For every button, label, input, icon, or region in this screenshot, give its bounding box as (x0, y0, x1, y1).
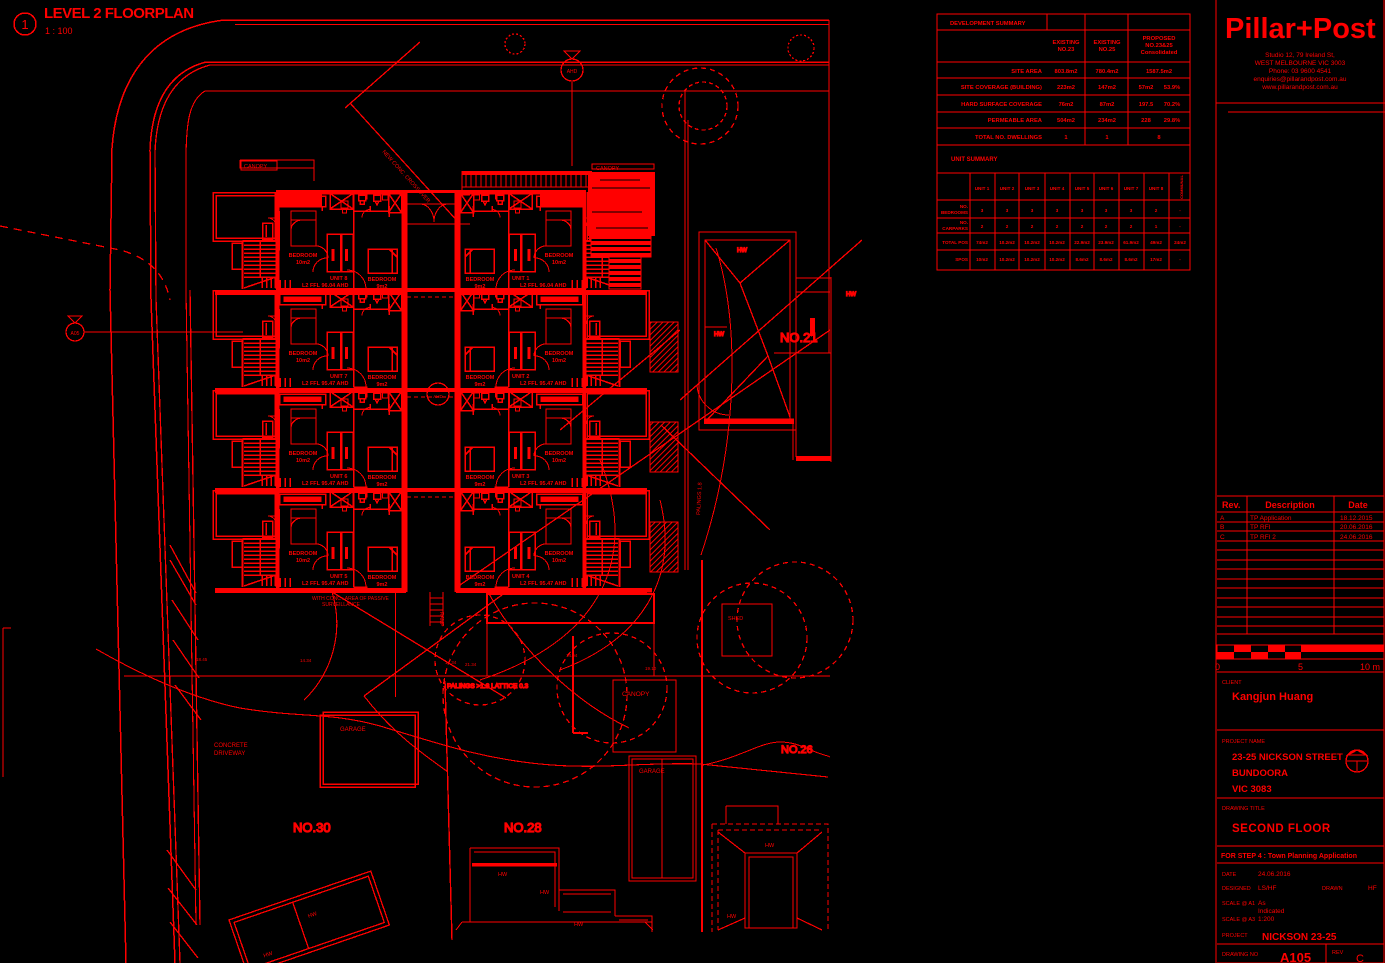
svg-text:UNIT 8: UNIT 8 (1149, 186, 1164, 191)
svg-text:Description: Description (1265, 500, 1315, 510)
svg-text:Date: Date (1348, 500, 1368, 510)
svg-text:FOR STEP 4 : Town Planning App: FOR STEP 4 : Town Planning Application (1221, 853, 1357, 860)
svg-text:PROJECT NAME: PROJECT NAME (1222, 739, 1265, 745)
svg-text:L2 FFL 95.47 AHD: L2 FFL 95.47 AHD (302, 381, 348, 387)
svg-text:UNIT 3: UNIT 3 (512, 474, 529, 480)
svg-text:10m2: 10m2 (296, 358, 310, 364)
svg-text:UNIT 5: UNIT 5 (330, 574, 347, 580)
svg-text:Rev.: Rev. (1222, 500, 1240, 510)
svg-text:87m2: 87m2 (1100, 102, 1115, 108)
svg-text:BEDROOM: BEDROOM (289, 253, 318, 259)
svg-text:Phone: 03 9600 4541: Phone: 03 9600 4541 (1269, 68, 1332, 75)
svg-text:10.2m2: 10.2m2 (1024, 257, 1040, 262)
svg-text:A105: A105 (1280, 950, 1311, 963)
svg-text:9m2: 9m2 (474, 382, 485, 388)
svg-text:780.4m2: 780.4m2 (1096, 69, 1119, 75)
svg-text:29.8%: 29.8% (1164, 118, 1180, 124)
svg-text:18.45: 18.45 (196, 657, 208, 662)
svg-text:COMMUNAL: COMMUNAL (1179, 175, 1184, 199)
svg-text:BEDROOM: BEDROOM (545, 551, 574, 557)
svg-text:L2 FFL 95.47 AHD: L2 FFL 95.47 AHD (302, 581, 348, 587)
svg-text:10m2: 10m2 (296, 260, 310, 266)
svg-text:9m2: 9m2 (474, 284, 485, 290)
svg-text:3: 3 (1081, 208, 1084, 213)
svg-text:57m2: 57m2 (1139, 85, 1154, 91)
svg-text:Studio 12, 79 Ireland St,: Studio 12, 79 Ireland St, (1265, 52, 1335, 59)
svg-text:2: 2 (1105, 224, 1108, 229)
svg-text:147m2: 147m2 (1098, 85, 1116, 91)
svg-text:24.06.2016: 24.06.2016 (1340, 534, 1373, 541)
svg-text:8.6m2: 8.6m2 (1124, 257, 1137, 262)
svg-text:PERMEABLE AREA: PERMEABLE AREA (988, 118, 1043, 124)
svg-text:10m2: 10m2 (976, 257, 988, 262)
svg-text:HW: HW (727, 914, 737, 920)
svg-text:53.9%: 53.9% (1164, 85, 1180, 91)
svg-text:5: 5 (1298, 662, 1303, 672)
svg-text:Indicated: Indicated (1258, 908, 1285, 915)
svg-text:BEDROOM: BEDROOM (289, 451, 318, 457)
svg-text:HW: HW (714, 332, 724, 338)
svg-text:NO.26: NO.26 (781, 744, 813, 756)
svg-text:1 : 100: 1 : 100 (45, 26, 73, 36)
svg-text:8.6m2: 8.6m2 (1099, 257, 1112, 262)
svg-text:9m2: 9m2 (474, 482, 485, 488)
svg-text:NO.23: NO.23 (1058, 47, 1076, 53)
svg-text:DRAWING TITLE: DRAWING TITLE (1222, 806, 1265, 812)
svg-text:NO.: NO. (960, 220, 968, 225)
svg-text:BEDROOM: BEDROOM (289, 551, 318, 557)
svg-text:SITE COVERAGE (BUILDING): SITE COVERAGE (BUILDING) (961, 85, 1042, 91)
svg-text:3: 3 (1031, 208, 1034, 213)
svg-text:DRAWN: DRAWN (1322, 886, 1343, 892)
svg-text:WEST MELBOURNE VIC 3003: WEST MELBOURNE VIC 3003 (1255, 60, 1346, 67)
svg-text:BEDROOM: BEDROOM (368, 575, 397, 581)
svg-text:24m2: 24m2 (1174, 240, 1186, 245)
svg-text:UNIT 4: UNIT 4 (512, 574, 530, 580)
svg-text:BUNDOORA: BUNDOORA (1232, 768, 1288, 779)
svg-text:21.34: 21.34 (465, 662, 477, 667)
svg-text:CONCRETE: CONCRETE (214, 743, 248, 749)
svg-text:10 m: 10 m (1360, 662, 1380, 672)
svg-text:REV: REV (1332, 950, 1344, 956)
svg-text:NO.: NO. (960, 204, 968, 209)
svg-text:NICKSON 23-25: NICKSON 23-25 (1262, 932, 1337, 943)
svg-text:A05: A05 (71, 331, 80, 337)
svg-text:1: 1 (1155, 224, 1158, 229)
svg-text:UNIT 7: UNIT 7 (1124, 186, 1139, 191)
svg-text:HW: HW (574, 922, 584, 928)
svg-text:UNIT 2: UNIT 2 (1000, 186, 1015, 191)
svg-text:BEDROOM: BEDROOM (466, 475, 495, 481)
svg-text:3: 3 (1130, 208, 1133, 213)
svg-text:9m2: 9m2 (376, 382, 387, 388)
svg-text:LS/HF: LS/HF (1258, 885, 1276, 892)
svg-text:BEDROOM: BEDROOM (368, 375, 397, 381)
svg-text:9m2: 9m2 (376, 284, 387, 290)
svg-text:3: 3 (981, 208, 984, 213)
svg-text:UNIT 2: UNIT 2 (512, 374, 529, 380)
svg-text:18.12.2015: 18.12.2015 (1340, 515, 1373, 522)
svg-text:DEVELOPMENT SUMMARY: DEVELOPMENT SUMMARY (950, 21, 1026, 27)
svg-text:10.2m2: 10.2m2 (999, 257, 1015, 262)
svg-text:TP RFI: TP RFI (1250, 524, 1271, 531)
svg-text:10m2: 10m2 (296, 558, 310, 564)
svg-text:10.2m2: 10.2m2 (1049, 257, 1065, 262)
svg-text:22.9m2: 22.9m2 (1074, 240, 1090, 245)
svg-text:BEDROOMS: BEDROOMS (941, 210, 968, 215)
svg-text:VIC 3083: VIC 3083 (1232, 784, 1272, 795)
svg-text:BEDROOM: BEDROOM (466, 277, 495, 283)
svg-text:2: 2 (981, 224, 984, 229)
svg-text:L2 FFL 95.47 AHD: L2 FFL 95.47 AHD (520, 581, 566, 587)
svg-text:10m2: 10m2 (552, 358, 566, 364)
svg-text:9m2: 9m2 (376, 482, 387, 488)
svg-text:HARD SURFACE COVERAGE: HARD SURFACE COVERAGE (961, 102, 1042, 108)
svg-text:76m2: 76m2 (1059, 102, 1074, 108)
svg-text:NO.23&25: NO.23&25 (1145, 43, 1173, 49)
svg-text:49m2: 49m2 (1150, 240, 1162, 245)
svg-text:HW: HW (737, 248, 747, 254)
svg-text:Consolidated: Consolidated (1141, 50, 1178, 56)
svg-text:2: 2 (1130, 224, 1133, 229)
svg-text:L2 FFL 96.04 AHD: L2 FFL 96.04 AHD (302, 283, 348, 289)
svg-text:PROPOSED: PROPOSED (1143, 36, 1176, 42)
svg-text:UNIT 1: UNIT 1 (975, 186, 990, 191)
svg-text:TP RFI 2: TP RFI 2 (1250, 534, 1276, 541)
svg-text:HW: HW (846, 292, 856, 298)
svg-text:CLIENT: CLIENT (1222, 680, 1242, 686)
svg-text:74m2: 74m2 (976, 240, 988, 245)
svg-text:2: 2 (1155, 208, 1158, 213)
svg-text:10.2m2: 10.2m2 (1024, 240, 1040, 245)
svg-text:BEDROOM: BEDROOM (368, 475, 397, 481)
svg-text:CARPARKS: CARPARKS (942, 226, 968, 231)
svg-text:1587.5m2: 1587.5m2 (1146, 69, 1172, 75)
svg-text:PROJECT: PROJECT (1222, 933, 1248, 939)
svg-text:Pillar+Post: Pillar+Post (1225, 13, 1376, 45)
svg-text:NO.30: NO.30 (293, 820, 331, 835)
svg-text:Kangjun Huang: Kangjun Huang (1232, 691, 1313, 703)
svg-text:HW: HW (540, 890, 550, 896)
svg-text:BEDROOM: BEDROOM (466, 375, 495, 381)
svg-text:EXISTING: EXISTING (1052, 40, 1080, 46)
svg-text:HW: HW (498, 872, 508, 878)
svg-text:197.5: 197.5 (1139, 102, 1154, 108)
svg-text:228: 228 (1141, 118, 1151, 124)
svg-text:BEDROOM: BEDROOM (545, 451, 574, 457)
svg-text:UNIT 6: UNIT 6 (1099, 186, 1114, 191)
svg-text:SITE AREA: SITE AREA (1011, 69, 1043, 75)
svg-text:UNIT 4: UNIT 4 (1050, 186, 1065, 191)
svg-text:10.2m2: 10.2m2 (999, 240, 1015, 245)
svg-text:EXISTING: EXISTING (1093, 40, 1121, 46)
svg-text:DATE: DATE (1222, 872, 1237, 878)
svg-text:DRAWING NO: DRAWING NO (1222, 952, 1259, 958)
svg-text:UNIT 7: UNIT 7 (330, 374, 347, 380)
svg-text:9m2: 9m2 (376, 582, 387, 588)
svg-text:BEDROOM: BEDROOM (368, 277, 397, 283)
svg-text:L2 FFL 95.47 AHD: L2 FFL 95.47 AHD (520, 381, 566, 387)
svg-text:B: B (1220, 524, 1224, 531)
svg-text:C: C (1356, 953, 1364, 963)
svg-text:DRIVEWAY: DRIVEWAY (214, 751, 245, 757)
svg-text:HF: HF (1368, 885, 1377, 892)
svg-text:GARAGE: GARAGE (639, 769, 665, 775)
svg-text:HW: HW (765, 843, 775, 849)
svg-text:L2 FFL 96.04 AHD: L2 FFL 96.04 AHD (520, 283, 566, 289)
svg-text:223m2: 223m2 (1057, 85, 1075, 91)
svg-text:UNIT SUMMARY: UNIT SUMMARY (951, 157, 997, 163)
svg-text:SCALE @ A3: SCALE @ A3 (1222, 917, 1255, 923)
svg-text:70.2%: 70.2% (1164, 102, 1180, 108)
svg-text:L2 FFL 95.47 AHD: L2 FFL 95.47 AHD (302, 481, 348, 487)
svg-text:10m2: 10m2 (552, 458, 566, 464)
svg-text:803.8m2: 803.8m2 (1055, 69, 1078, 75)
svg-text:SHED: SHED (728, 616, 743, 622)
svg-text:234m2: 234m2 (1098, 118, 1116, 124)
svg-text:SECOND FLOOR: SECOND FLOOR (1232, 823, 1331, 835)
svg-text:8.6m2: 8.6m2 (1075, 257, 1088, 262)
svg-text:GARAGE: GARAGE (340, 727, 366, 733)
svg-text:BEDROOM: BEDROOM (545, 351, 574, 357)
svg-text:17m2: 17m2 (1150, 257, 1162, 262)
svg-text:3: 3 (1056, 208, 1059, 213)
svg-text:2: 2 (1006, 224, 1009, 229)
svg-text:TP Application: TP Application (1250, 515, 1292, 522)
svg-text:SURVEILLANCE: SURVEILLANCE (322, 602, 361, 608)
svg-text:23.9m2: 23.9m2 (1098, 240, 1114, 245)
svg-text:19.10: 19.10 (645, 666, 657, 671)
svg-text:9m2: 9m2 (474, 582, 485, 588)
svg-text:1: 1 (21, 17, 28, 32)
svg-text:www.pillarandpost.com.au: www.pillarandpost.com.au (1261, 84, 1338, 91)
svg-text:CANOPY: CANOPY (622, 691, 650, 698)
svg-text:LEVEL 2 FLOORPLAN: LEVEL 2 FLOORPLAN (44, 5, 194, 22)
svg-text:NO.25: NO.25 (1099, 47, 1117, 53)
svg-text:2: 2 (1031, 224, 1034, 229)
svg-text:3: 3 (1105, 208, 1108, 213)
svg-text:10m2: 10m2 (552, 558, 566, 564)
svg-text:A: A (1220, 515, 1225, 522)
svg-text:UNIT 3: UNIT 3 (1025, 186, 1040, 191)
svg-text:enquiries@pillarandpost.com.au: enquiries@pillarandpost.com.au (1254, 76, 1347, 83)
svg-text:14.34: 14.34 (300, 658, 312, 663)
svg-text:10.2m2: 10.2m2 (1049, 240, 1065, 245)
svg-text:23-25 NICKSON STREET: 23-25 NICKSON STREET (1232, 752, 1343, 763)
svg-text:RAMP: RAMP (438, 612, 444, 627)
svg-text:3: 3 (1006, 208, 1009, 213)
svg-text:UNIT 5: UNIT 5 (1075, 186, 1090, 191)
svg-text:0: 0 (1215, 662, 1220, 672)
svg-text:1:200: 1:200 (1258, 916, 1275, 923)
svg-text:504m2: 504m2 (1057, 118, 1075, 124)
svg-text:20.06.2016: 20.06.2016 (1340, 524, 1373, 531)
svg-text:CANOPY: CANOPY (596, 166, 620, 172)
svg-text:TOTAL NO. DWELLINGS: TOTAL NO. DWELLINGS (975, 135, 1042, 141)
svg-text:UNIT 1: UNIT 1 (512, 276, 529, 282)
svg-text:BEDROOM: BEDROOM (545, 253, 574, 259)
svg-text:As: As (1258, 900, 1266, 907)
svg-text:C: C (1220, 534, 1225, 541)
svg-text:UNIT 6: UNIT 6 (330, 474, 347, 480)
svg-text:DESIGNED: DESIGNED (1222, 886, 1251, 892)
svg-text:61.9m2: 61.9m2 (1123, 240, 1139, 245)
svg-text:NO.28: NO.28 (504, 820, 542, 835)
svg-text:14.34: 14.34 (445, 660, 457, 665)
svg-text:SCALE @ A1: SCALE @ A1 (1222, 901, 1255, 907)
svg-text:L2 FFL 95.47 AHD: L2 FFL 95.47 AHD (520, 481, 566, 487)
svg-text:CANOPY: CANOPY (244, 164, 268, 170)
svg-text:2: 2 (1081, 224, 1084, 229)
svg-text:2: 2 (1056, 224, 1059, 229)
svg-text:BEDROOM: BEDROOM (289, 351, 318, 357)
svg-text:TOTAL POS: TOTAL POS (942, 240, 968, 245)
svg-text:10m2: 10m2 (552, 260, 566, 266)
svg-text:SPOS: SPOS (955, 257, 968, 262)
svg-text:UNIT 8: UNIT 8 (330, 276, 347, 282)
svg-text:AHD: AHD (567, 69, 578, 75)
svg-text:10m2: 10m2 (296, 458, 310, 464)
svg-text:24.06.2016: 24.06.2016 (1258, 871, 1291, 878)
